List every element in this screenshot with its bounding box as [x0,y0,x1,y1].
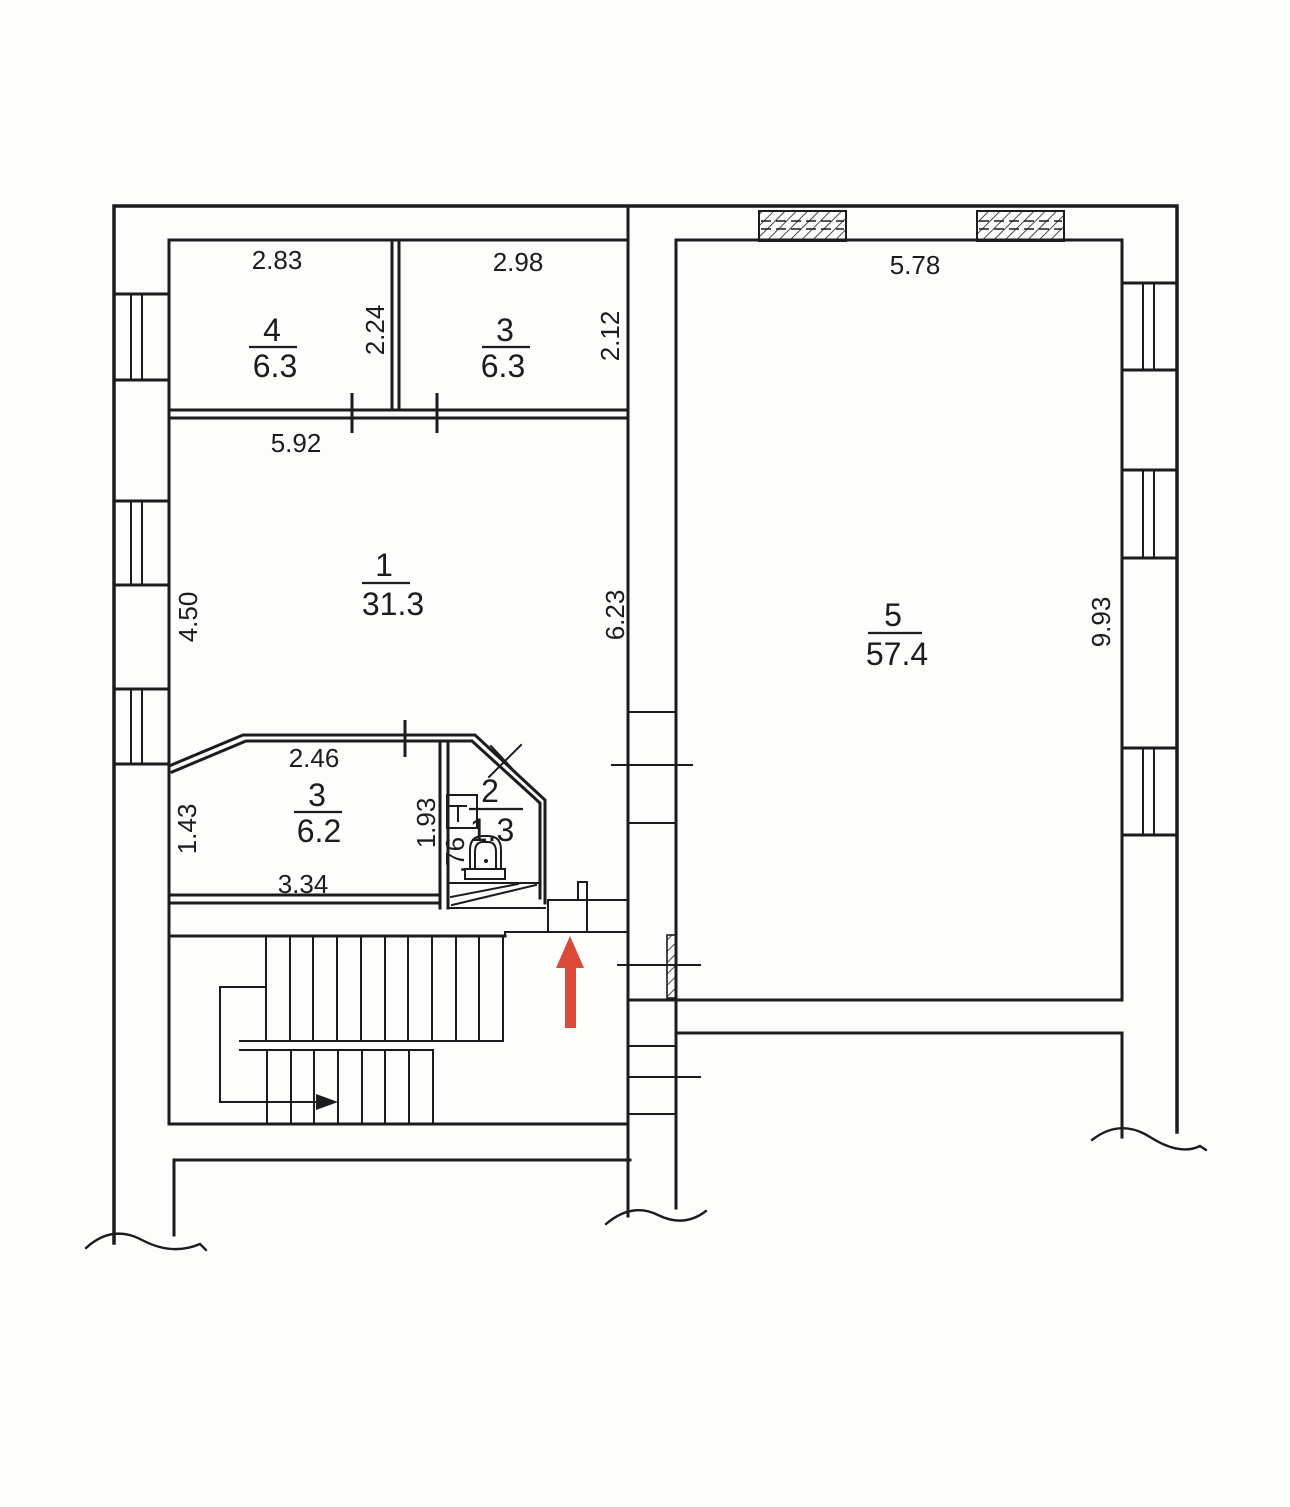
window-icon-left-3 [114,689,169,764]
stair-direction-arrow-icon [220,987,338,1110]
break-line-icon-bottom-right [1092,1128,1206,1150]
room1-number: 1 [375,547,393,583]
dim-room3top-right: 2.12 [595,311,625,362]
dim-room4-right: 2.24 [360,305,390,356]
stairs-upper-flight-icon [240,936,503,1041]
room3b-area: 6.2 [297,813,341,849]
dim-room4-top: 2.83 [252,245,303,275]
dim-room3top-top: 2.98 [493,247,544,277]
room3top-area: 6.3 [481,348,525,384]
floor-plan-page: 4 6.3 3 6.3 1 31.3 5 57.4 3 6.2 2 1.3 2.… [0,0,1290,1507]
dim-room1-top: 5.92 [271,428,322,458]
dim-room1-right: 6.23 [600,590,630,641]
wall-hatch-column [667,935,676,998]
dim-room3b-left: 1.43 [172,804,202,855]
room2-number: 2 [481,773,499,809]
window-icon-left-2 [114,501,169,585]
entrance-arrow-icon [556,936,584,1028]
room5-number: 5 [884,597,902,633]
dim-room3b-bottom: 3.34 [278,869,329,899]
dim-room1-left: 4.50 [173,592,203,643]
floor-plan-canvas: 4 6.3 3 6.3 1 31.3 5 57.4 3 6.2 2 1.3 2.… [0,0,1290,1507]
dim-room5-top: 5.78 [890,250,941,280]
stairwell [169,882,628,1124]
door-leaf-icon [451,884,536,905]
room1-area: 31.3 [362,586,424,622]
room4-number: 4 [263,312,281,348]
vent-shaft-hatch-right [977,211,1064,241]
room3b-number: 3 [308,777,326,813]
room-3-bottom-label: 3 6.2 [294,777,342,849]
window-icon-left-1 [114,294,169,380]
window-icon-right-1 [1122,283,1177,370]
room-3-top-label: 3 6.3 [481,312,530,384]
room4-area: 6.3 [253,348,297,384]
window-icon-right-2 [1122,470,1177,558]
dim-room2-inner: .76 [440,837,470,873]
dim-room2-left: 1.93 [411,798,441,849]
room-4-label: 4 6.3 [249,312,297,384]
lower-walls [174,1160,630,1235]
room3top-number: 3 [496,312,514,348]
stairs-lower-flight-icon [240,1050,433,1124]
window-icon-right-3 [1122,748,1177,835]
room2-area: 1.3 [470,812,514,848]
break-line-icon-bottom-left [86,1234,206,1250]
vent-shaft-hatch-left [759,211,846,241]
room5-area: 57.4 [866,636,928,672]
rooms-4-3-walls [169,240,628,433]
dim-room3b-top: 2.46 [289,743,340,773]
room-1-label: 1 31.3 [362,547,424,622]
middle-wall [612,206,700,1216]
room-5-label: 5 57.4 [866,597,928,672]
dim-room5-right: 9.93 [1086,597,1116,648]
break-line-icon-stair-bottom [606,1210,706,1224]
